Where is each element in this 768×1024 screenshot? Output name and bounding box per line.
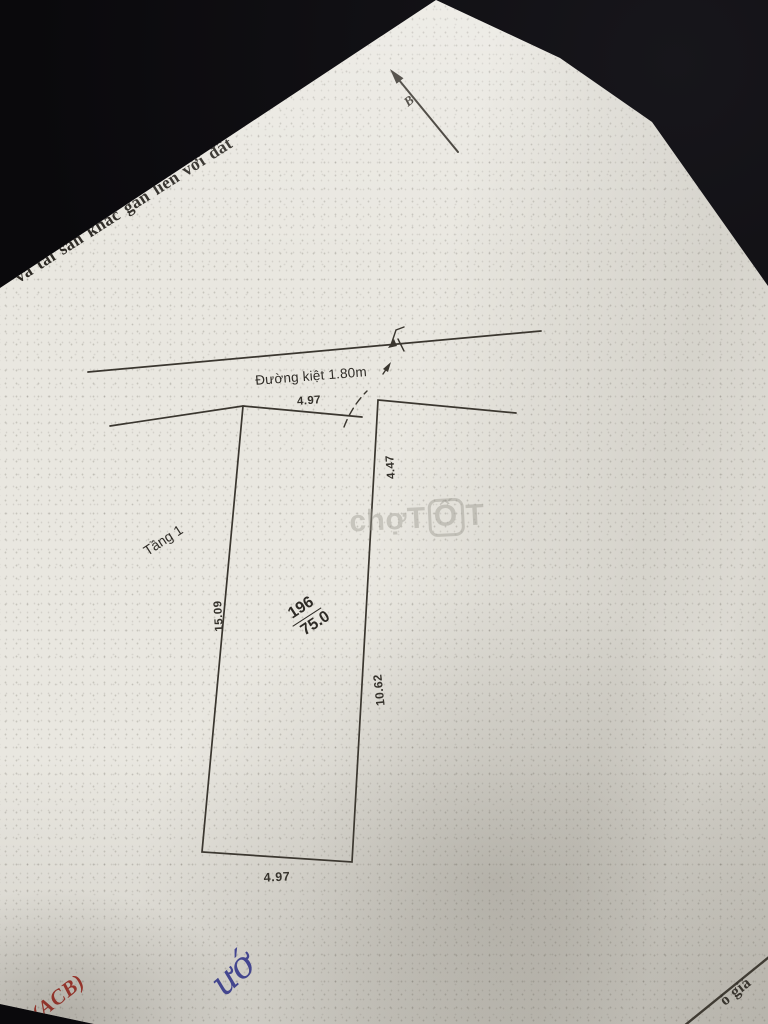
watermark-logo-box: Ố (427, 498, 465, 538)
road-tick-mark (398, 339, 404, 351)
document-paper: và tài sản khác gắn liền với đất (0, 0, 768, 1024)
dimension-left: 15.09 (212, 600, 226, 632)
watermark-letter-t1: T (406, 502, 427, 537)
dimension-bottom: 4.97 (263, 869, 290, 884)
watermark-prefix: chợ (349, 503, 409, 540)
parcel-outline (202, 400, 516, 862)
chotot-watermark: chợTỐT (348, 496, 485, 541)
dimension-top: 4.97 (297, 394, 322, 408)
parcel-top-boundary (110, 406, 362, 426)
boundary-connector-curve (344, 391, 367, 427)
watermark-letter-t2: T (465, 498, 486, 533)
photo-background: và tài sản khác gắn liền với đất (0, 0, 768, 1024)
road-line (88, 331, 541, 372)
north-arrow-icon (399, 80, 458, 152)
watermark-letter-o: Ố (433, 501, 458, 532)
dimension-right-upper: 4.47 (384, 455, 398, 480)
survey-arrowhead-icon (383, 362, 391, 372)
